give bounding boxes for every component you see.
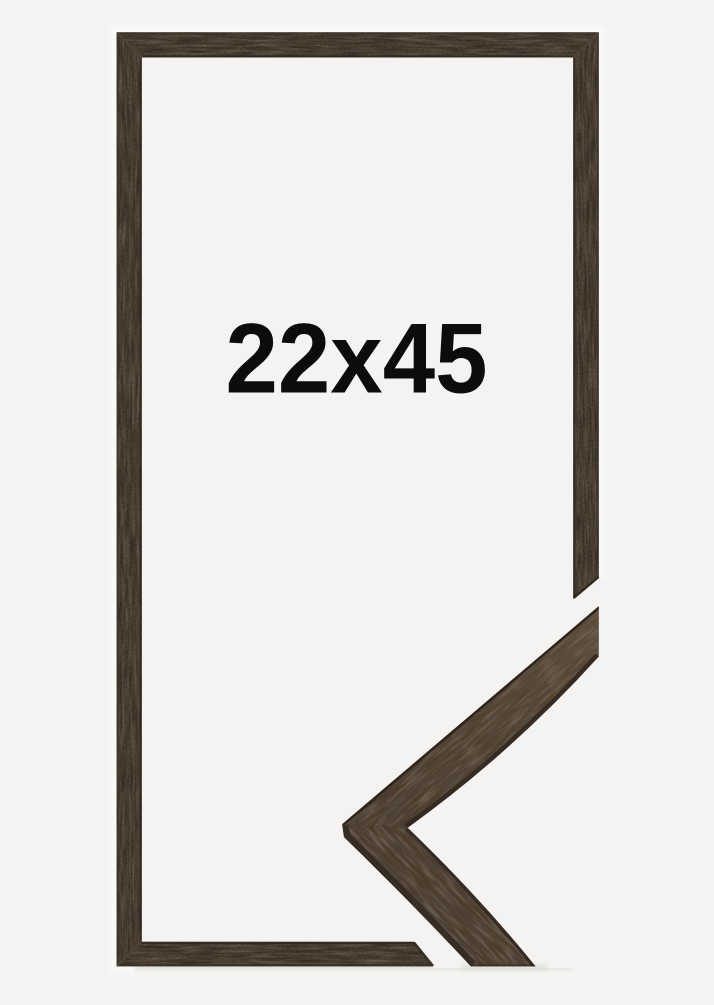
svg-text:22x45: 22x45 [226,304,488,415]
